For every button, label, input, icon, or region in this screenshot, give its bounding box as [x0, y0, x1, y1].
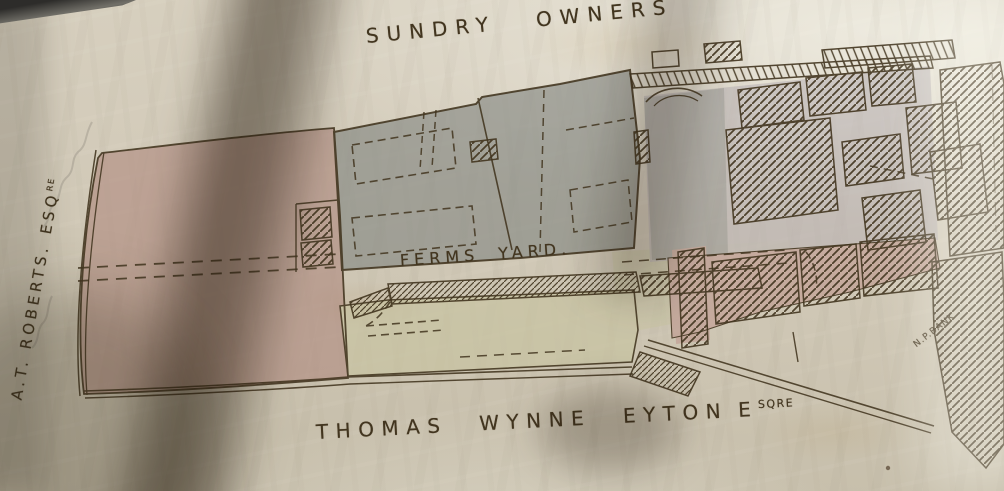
building-3 [868, 64, 916, 106]
road-tick [793, 332, 798, 362]
building-2 [806, 72, 866, 116]
bank-road-band [932, 252, 1004, 468]
road-hatch-sliver [630, 352, 700, 396]
frontage-band-east [822, 40, 955, 68]
roberts-outbuilding-2 [301, 240, 333, 267]
building-4-large [726, 118, 838, 224]
ink-speck [886, 466, 890, 470]
farm-block-building [470, 139, 498, 162]
photo-of-estate-plan: SUNDRY OWNERS A.T. ROBERTS.ESQRE FERMS Y… [0, 0, 1004, 491]
wash-gray-subplot [644, 88, 728, 260]
cottage-above-road-2 [704, 41, 742, 63]
wash-farm-block [334, 70, 640, 270]
cottage-above-road [652, 50, 679, 68]
building-5 [842, 134, 904, 186]
roberts-outbuilding-1 [300, 207, 332, 240]
building-1 [738, 82, 804, 128]
label-owner-bottom-esquire: ESQRE [737, 395, 795, 422]
